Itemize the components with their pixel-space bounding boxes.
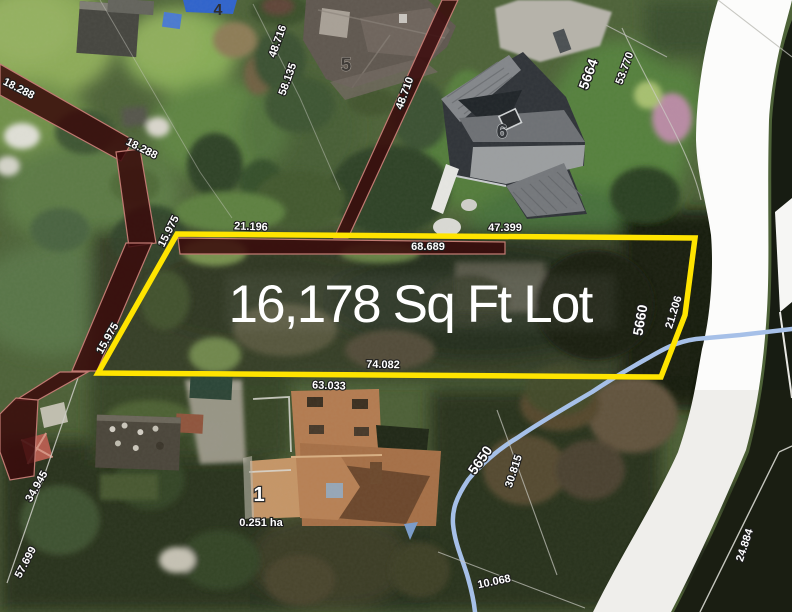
- svg-text:47.399: 47.399: [488, 222, 522, 234]
- svg-text:21.196: 21.196: [234, 220, 268, 233]
- svg-text:74.082: 74.082: [366, 359, 400, 372]
- svg-text:1: 1: [253, 484, 264, 506]
- svg-text:4: 4: [214, 2, 223, 19]
- svg-text:63.033: 63.033: [312, 379, 346, 392]
- svg-text:5: 5: [341, 55, 352, 76]
- svg-text:0.251 ha: 0.251 ha: [239, 517, 283, 529]
- svg-text:16,178 Sq Ft Lot: 16,178 Sq Ft Lot: [228, 275, 593, 334]
- svg-text:6: 6: [496, 121, 507, 143]
- svg-text:68.689: 68.689: [411, 241, 445, 253]
